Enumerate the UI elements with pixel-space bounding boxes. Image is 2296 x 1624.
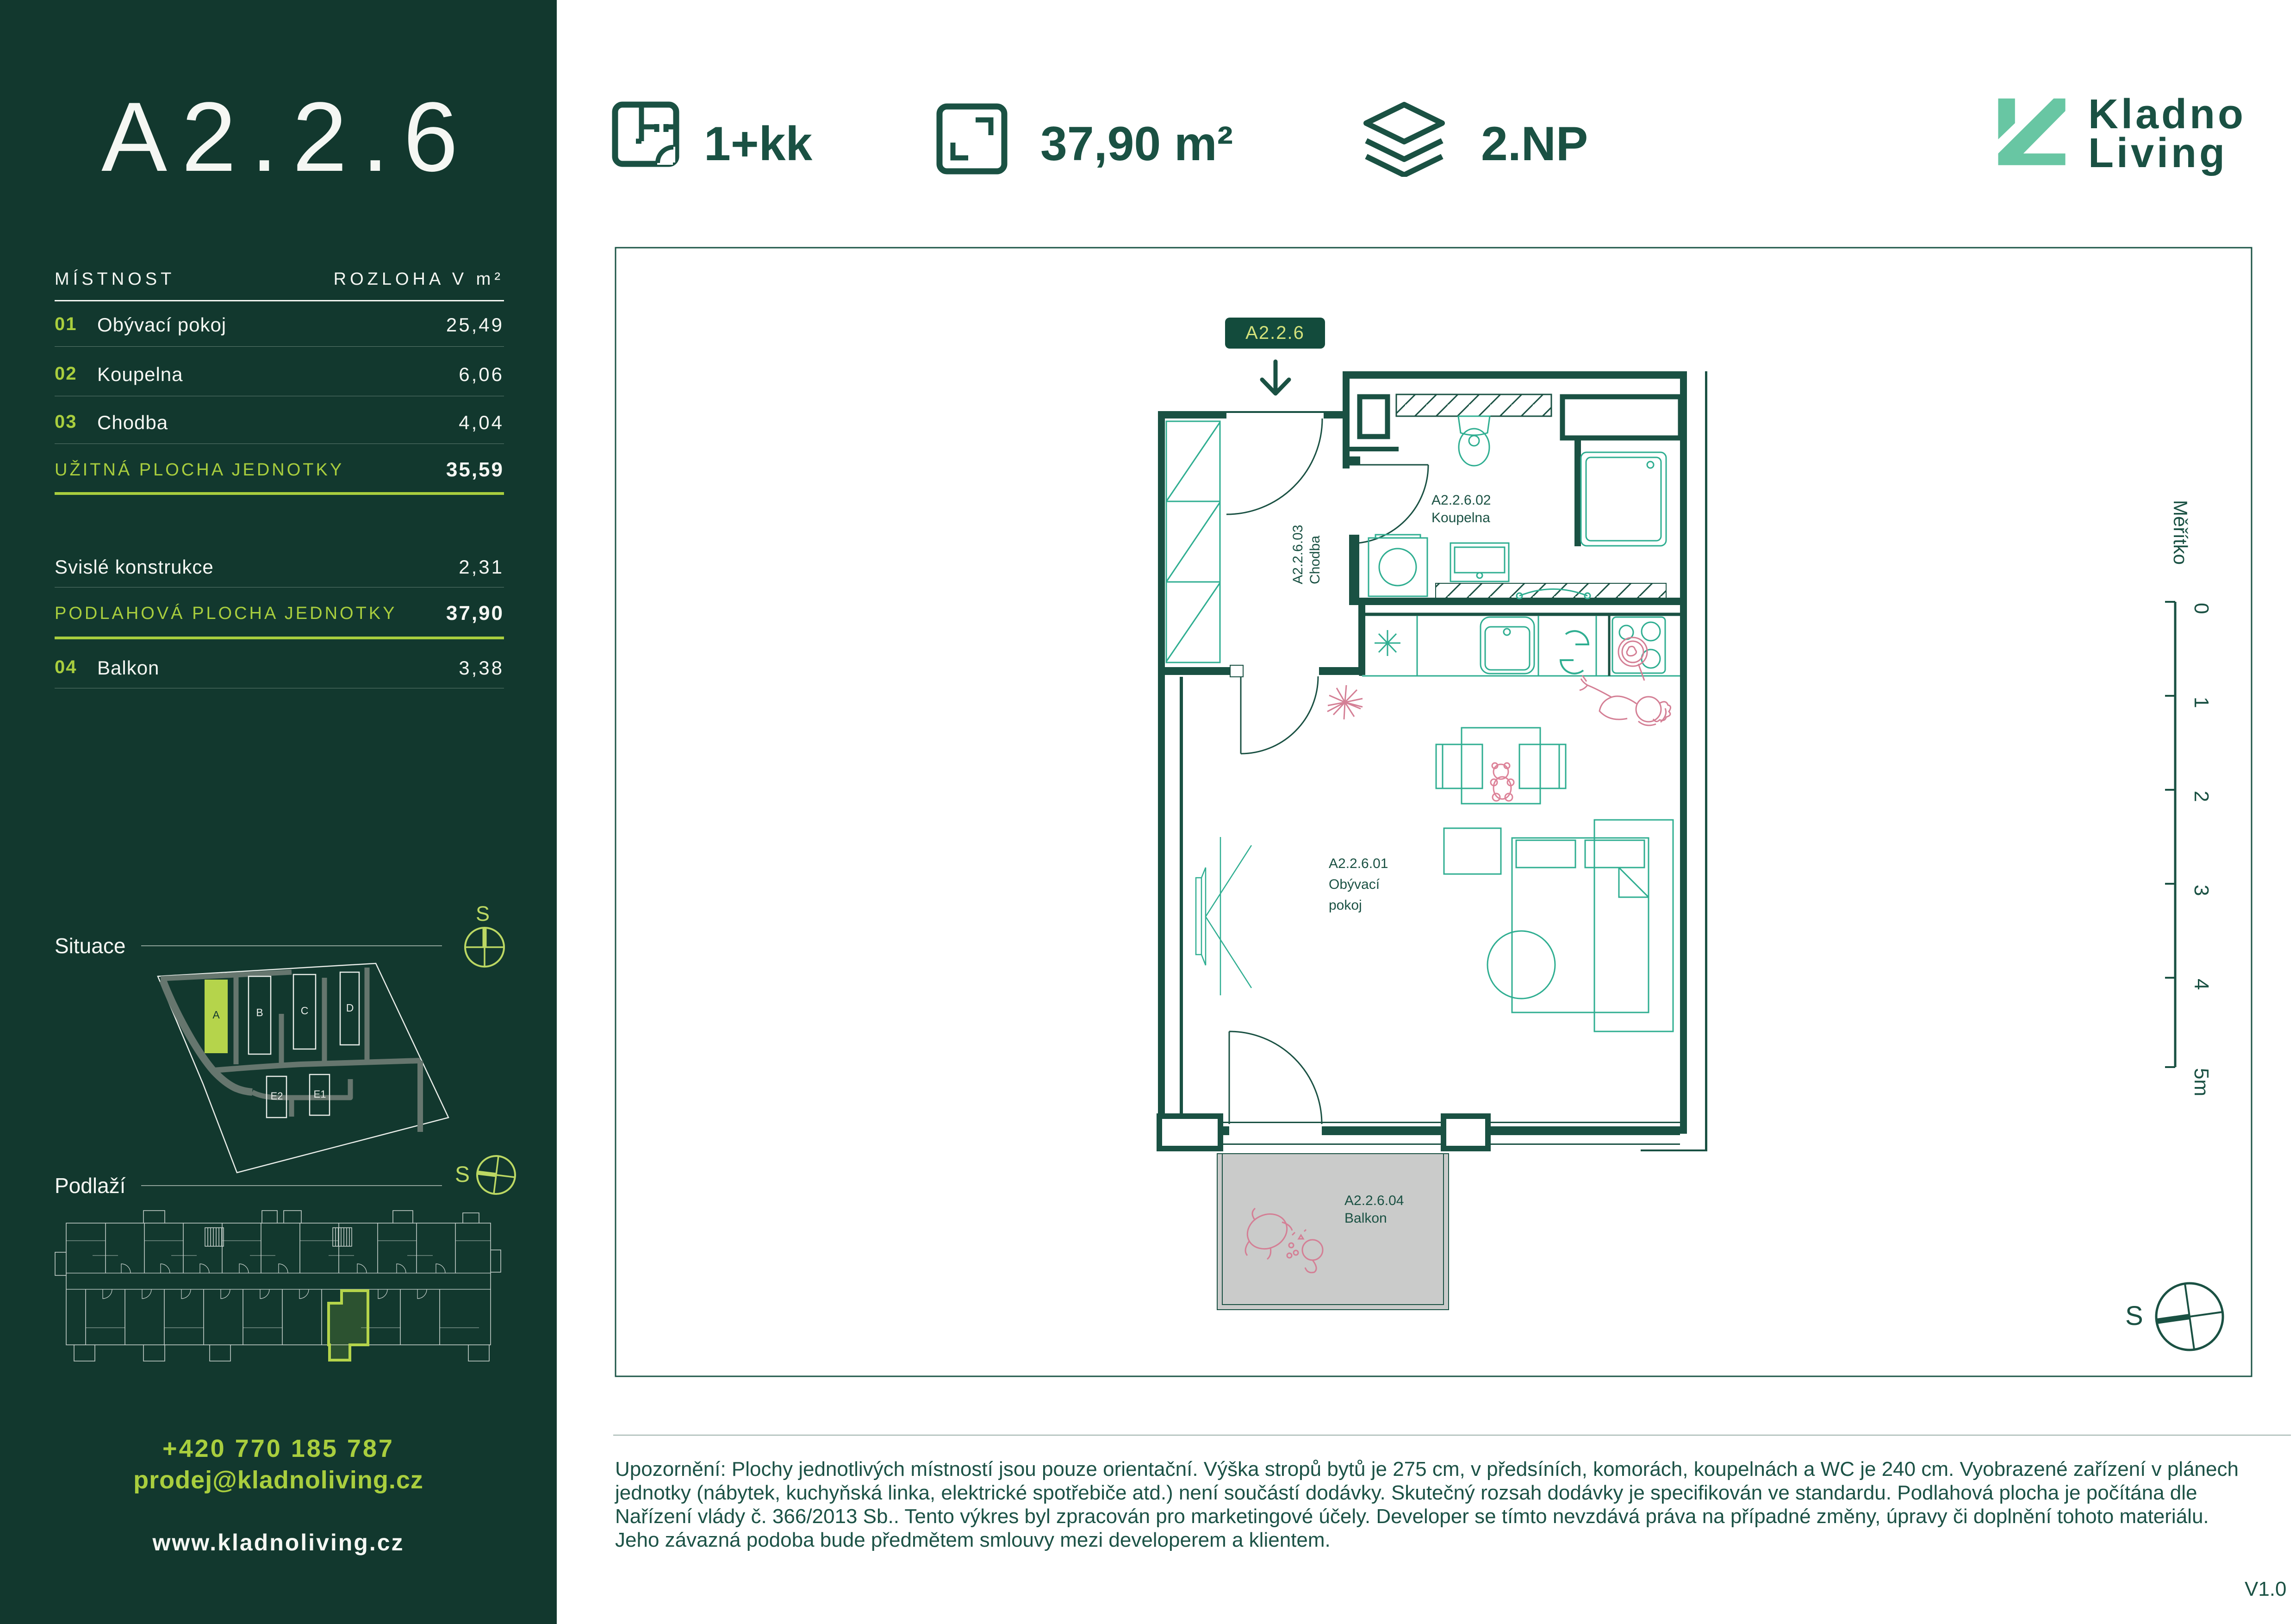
svg-text:A: A <box>212 1009 220 1021</box>
svg-text:S: S <box>2125 1301 2143 1331</box>
svg-text:A2.2.6: A2.2.6 <box>1245 323 1305 343</box>
svg-text:E1: E1 <box>314 1088 326 1100</box>
svg-text:S: S <box>455 1162 470 1187</box>
svg-text:Měřítko: Měřítko <box>2170 500 2191 565</box>
svg-text:4: 4 <box>2190 979 2213 990</box>
svg-text:C: C <box>301 1005 309 1017</box>
svg-text:2: 2 <box>2190 791 2213 802</box>
svg-text:S: S <box>476 902 490 925</box>
svg-text:5m: 5m <box>2190 1068 2213 1096</box>
svg-text:E2: E2 <box>271 1090 283 1102</box>
svg-text:D: D <box>346 1002 354 1014</box>
svg-text:3: 3 <box>2190 885 2213 896</box>
svg-text:1: 1 <box>2190 697 2213 708</box>
svg-text:B: B <box>256 1006 263 1018</box>
svg-text:0: 0 <box>2190 603 2213 614</box>
